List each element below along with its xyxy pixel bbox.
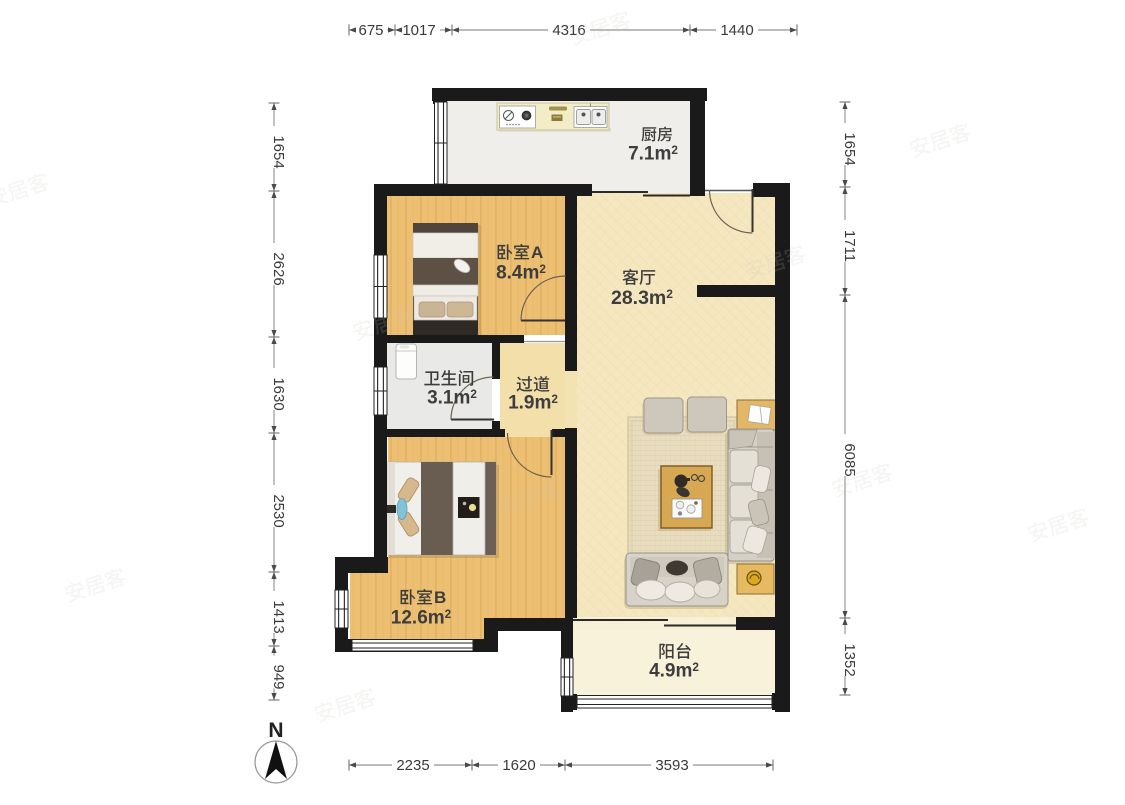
- svg-text:4316: 4316: [552, 22, 585, 39]
- svg-text:2235: 2235: [396, 757, 429, 774]
- svg-text:1630: 1630: [270, 377, 287, 410]
- svg-text:1017: 1017: [402, 22, 435, 39]
- svg-text:2530: 2530: [270, 494, 287, 527]
- svg-text:3.1m2: 3.1m2: [427, 388, 477, 409]
- svg-text:1352: 1352: [841, 643, 858, 676]
- svg-text:949: 949: [270, 664, 287, 689]
- svg-text:A: A: [531, 243, 543, 262]
- svg-text:1620: 1620: [502, 757, 535, 774]
- svg-text:675: 675: [358, 22, 383, 39]
- svg-text:1440: 1440: [720, 22, 753, 39]
- svg-text:6085: 6085: [841, 443, 858, 476]
- svg-text:1413: 1413: [270, 600, 287, 633]
- svg-text:1711: 1711: [841, 230, 858, 262]
- svg-text:1654: 1654: [841, 132, 858, 165]
- svg-text:2626: 2626: [270, 252, 287, 285]
- svg-text:3593: 3593: [655, 757, 688, 774]
- svg-text:7.1m2: 7.1m2: [628, 144, 678, 165]
- svg-text:1.9m2: 1.9m2: [508, 393, 558, 414]
- svg-text:28.3m2: 28.3m2: [611, 287, 673, 309]
- svg-text:N: N: [268, 719, 283, 742]
- svg-text:B: B: [434, 588, 446, 607]
- svg-text:8.4m2: 8.4m2: [496, 263, 546, 284]
- svg-text:1654: 1654: [270, 135, 287, 168]
- svg-text:4.9m2: 4.9m2: [649, 661, 699, 682]
- svg-text:12.6m2: 12.6m2: [391, 608, 452, 629]
